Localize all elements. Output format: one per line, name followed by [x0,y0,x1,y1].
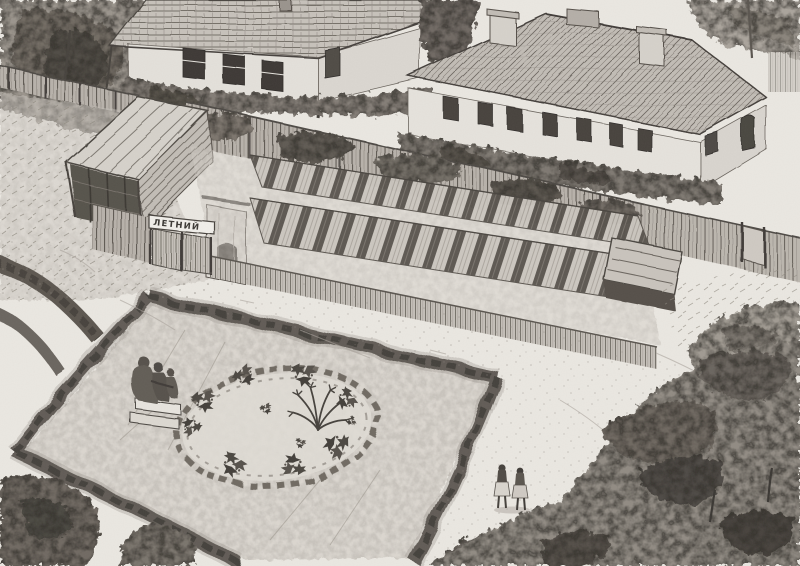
pencil-sketch-artwork: ЛЕТНИЙ [0,0,800,566]
paper-grain-overlay [0,0,800,566]
sketch-canvas: ЛЕТНИЙ [0,0,800,566]
